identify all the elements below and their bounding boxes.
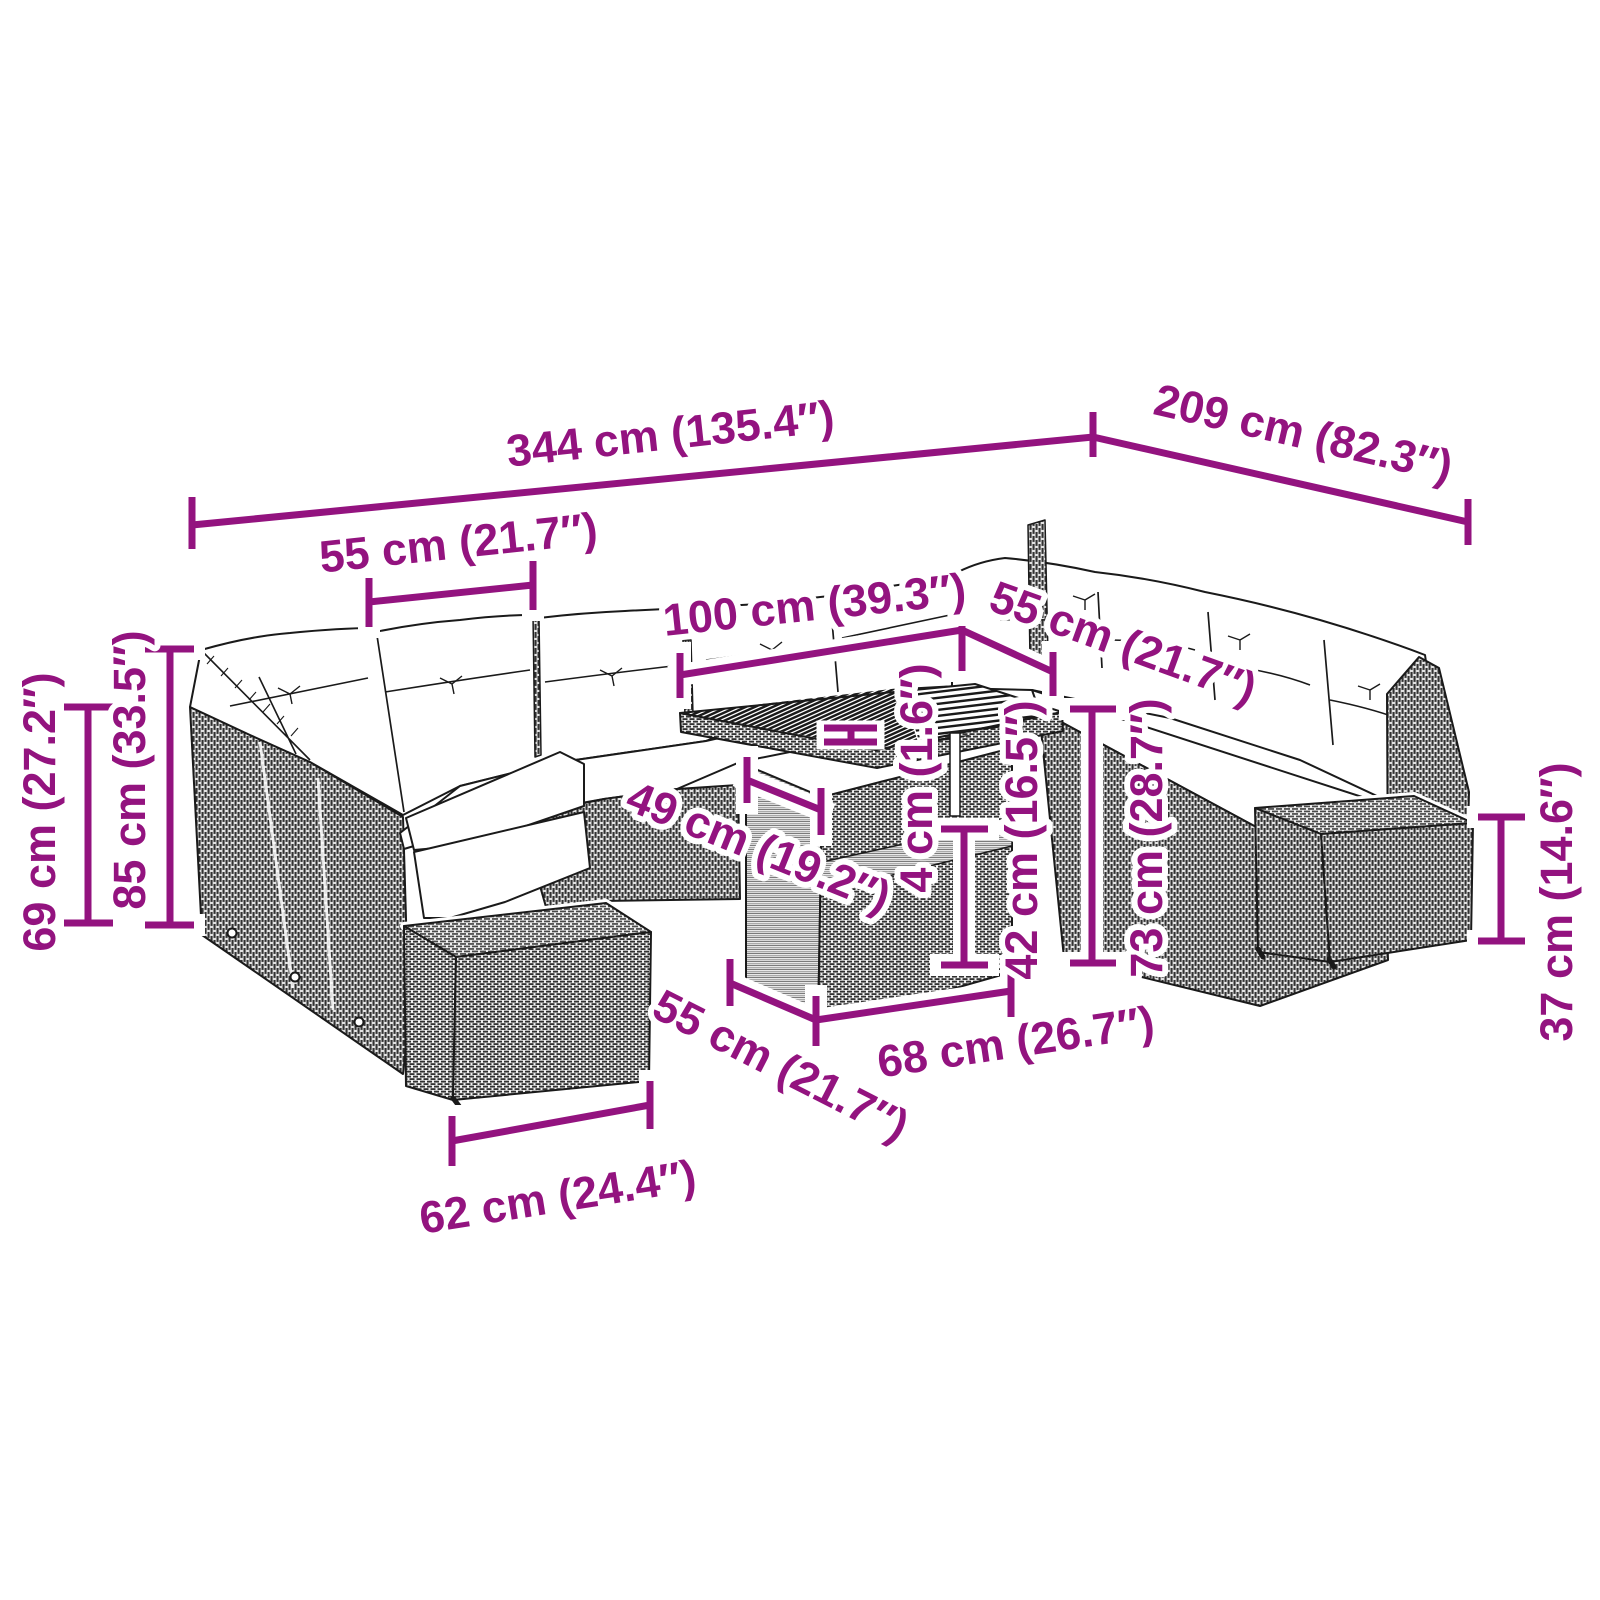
svg-text:37 cm (14.6″): 37 cm (14.6″)	[1531, 762, 1582, 1041]
svg-text:73 cm (28.7″): 73 cm (28.7″)	[1121, 698, 1172, 977]
svg-text:42 cm (16.5″): 42 cm (16.5″)	[996, 700, 1047, 979]
svg-text:4 cm (1.6″): 4 cm (1.6″)	[891, 663, 942, 892]
svg-text:85 cm (33.5″): 85 cm (33.5″)	[104, 630, 155, 909]
svg-text:69 cm (27.2″): 69 cm (27.2″)	[14, 672, 65, 951]
